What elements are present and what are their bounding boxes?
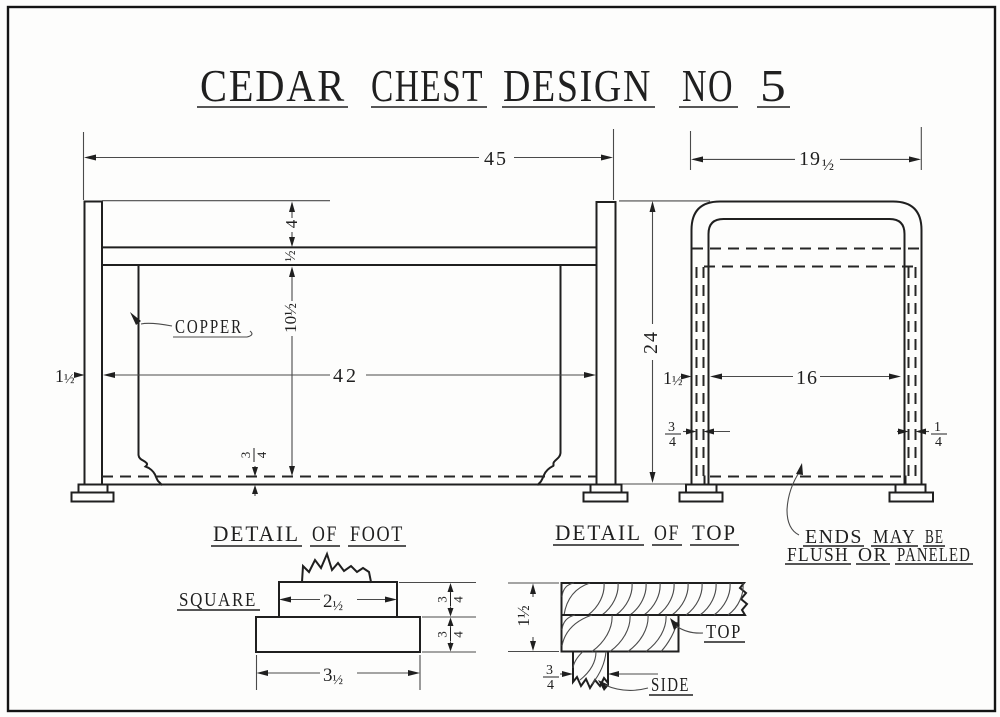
svg-text:OR: OR xyxy=(858,545,888,566)
svg-text:4: 4 xyxy=(669,435,676,450)
svg-text:4: 4 xyxy=(254,451,269,458)
svg-text:42: 42 xyxy=(333,365,359,387)
svg-text:TOP: TOP xyxy=(706,621,742,643)
svg-text:DETAIL: DETAIL xyxy=(555,520,642,545)
svg-text:4: 4 xyxy=(451,631,466,638)
svg-text:NO: NO xyxy=(682,60,734,111)
svg-text:3: 3 xyxy=(546,663,553,678)
svg-text:FLUSH: FLUSH xyxy=(787,545,849,566)
svg-text:½: ½ xyxy=(283,250,299,261)
svg-text:5: 5 xyxy=(760,60,788,111)
svg-text:3: 3 xyxy=(238,452,253,459)
svg-text:SQUARE: SQUARE xyxy=(179,589,257,611)
svg-text:OF: OF xyxy=(312,521,338,546)
svg-text:SIDE: SIDE xyxy=(651,674,690,696)
svg-text:TOP: TOP xyxy=(692,520,737,545)
svg-text:4: 4 xyxy=(282,219,301,228)
svg-text:DETAIL: DETAIL xyxy=(213,521,300,546)
svg-text:3: 3 xyxy=(435,631,450,638)
svg-text:1: 1 xyxy=(934,420,941,435)
svg-text:FOOT: FOOT xyxy=(350,521,404,546)
svg-text:4: 4 xyxy=(451,596,466,603)
svg-text:1½: 1½ xyxy=(514,605,533,627)
svg-text:3: 3 xyxy=(668,420,675,435)
svg-text:4: 4 xyxy=(547,678,554,693)
svg-text:45: 45 xyxy=(484,148,508,170)
svg-text:COPPER: COPPER xyxy=(175,316,243,338)
svg-text:PANELED: PANELED xyxy=(897,545,971,566)
svg-text:10½: 10½ xyxy=(281,303,300,333)
svg-text:3: 3 xyxy=(435,596,450,603)
svg-text:DESIGN: DESIGN xyxy=(503,60,652,111)
svg-text:CEDAR: CEDAR xyxy=(200,60,346,111)
svg-text:CHEST: CHEST xyxy=(371,60,484,111)
svg-text:OF: OF xyxy=(654,520,680,545)
svg-text:24: 24 xyxy=(640,330,662,354)
svg-text:16: 16 xyxy=(796,367,818,389)
svg-text:4: 4 xyxy=(935,435,942,450)
